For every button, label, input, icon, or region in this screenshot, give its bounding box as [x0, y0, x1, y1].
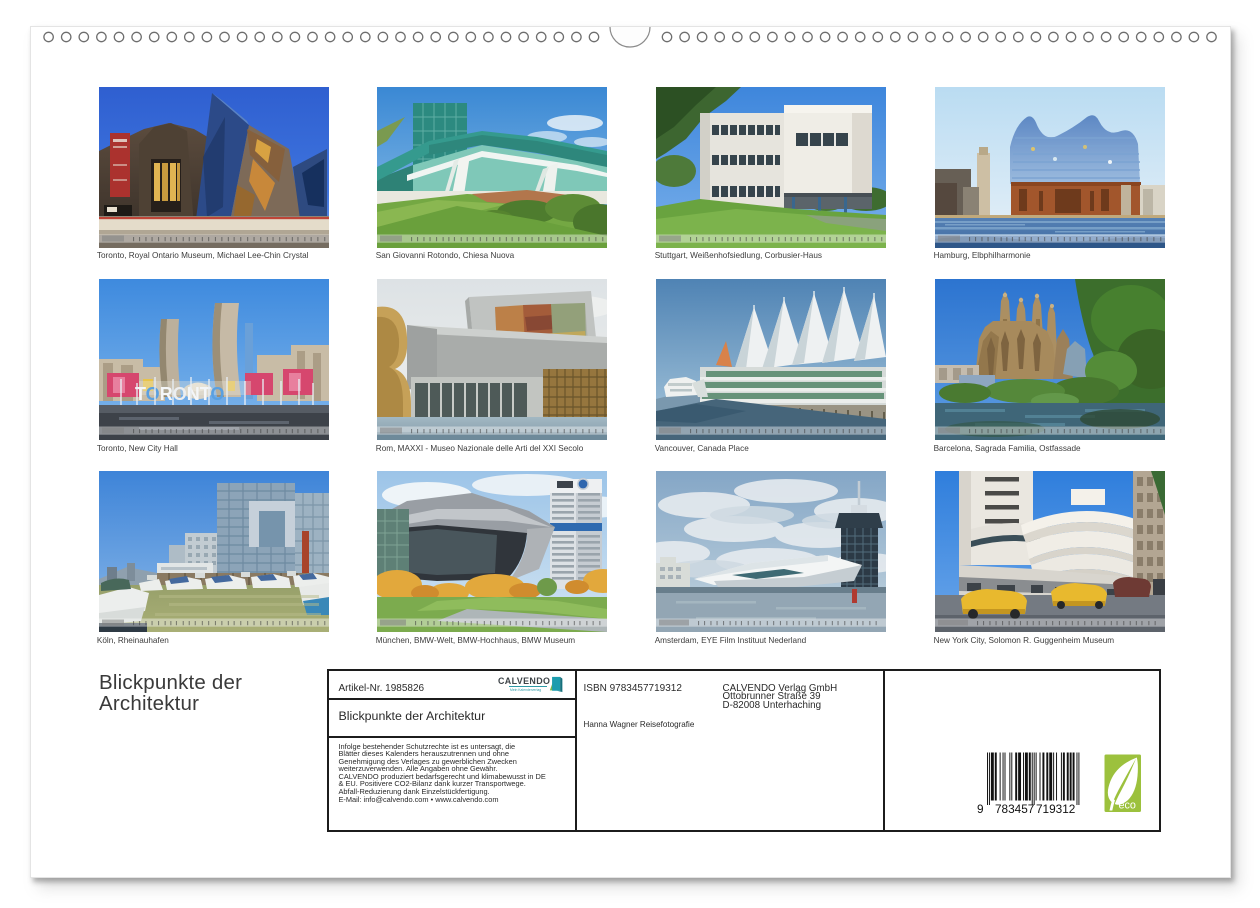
svg-text:TORONTO: TORONTO — [135, 384, 224, 404]
